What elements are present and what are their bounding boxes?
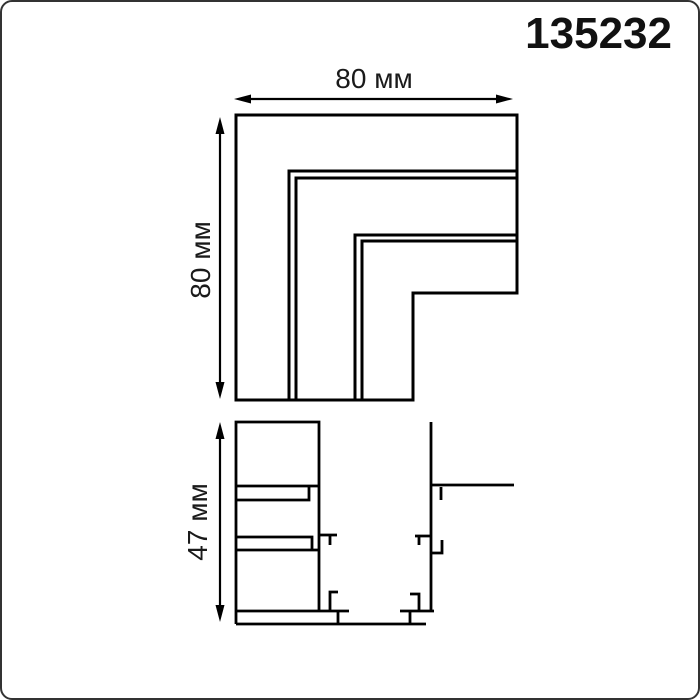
width-arrowhead-left (234, 95, 251, 104)
top-height-arrowhead-down (216, 382, 225, 399)
width-arrowhead-right (496, 95, 513, 104)
top-view-channel-outer-line1 (289, 171, 517, 400)
top-view-channel-inner-line2 (362, 241, 517, 400)
side-view-outline (236, 422, 514, 624)
top-view-channel-outer-line2 (296, 178, 517, 400)
side-view-snap-hook-left (330, 592, 338, 611)
side-view-snap-hook-right (410, 594, 419, 611)
top-view-channel-inner-line1 (355, 235, 517, 400)
top-height-arrowhead-up (216, 117, 225, 134)
technical-drawing-canvas (2, 2, 700, 700)
top-view-width-dimension (234, 95, 513, 104)
product-drawing-page: 135232 80 мм 80 мм 47 мм (0, 0, 700, 700)
side-view-body-hook (319, 535, 337, 545)
side-view-flange (431, 485, 514, 500)
side-height-arrowhead-down (216, 605, 225, 622)
side-view-body (236, 422, 319, 624)
side-view-slot1-bottom (236, 486, 309, 500)
top-view-outline (236, 115, 517, 400)
top-view-height-dimension (216, 117, 225, 399)
side-view-wall-hook-right (431, 540, 442, 553)
side-view-height-dimension (216, 422, 225, 622)
side-view-slot2-top (236, 537, 312, 550)
side-height-arrowhead-up (216, 422, 225, 439)
top-view-outer-contour (236, 115, 517, 400)
side-view-wall-hook-left (415, 536, 431, 545)
